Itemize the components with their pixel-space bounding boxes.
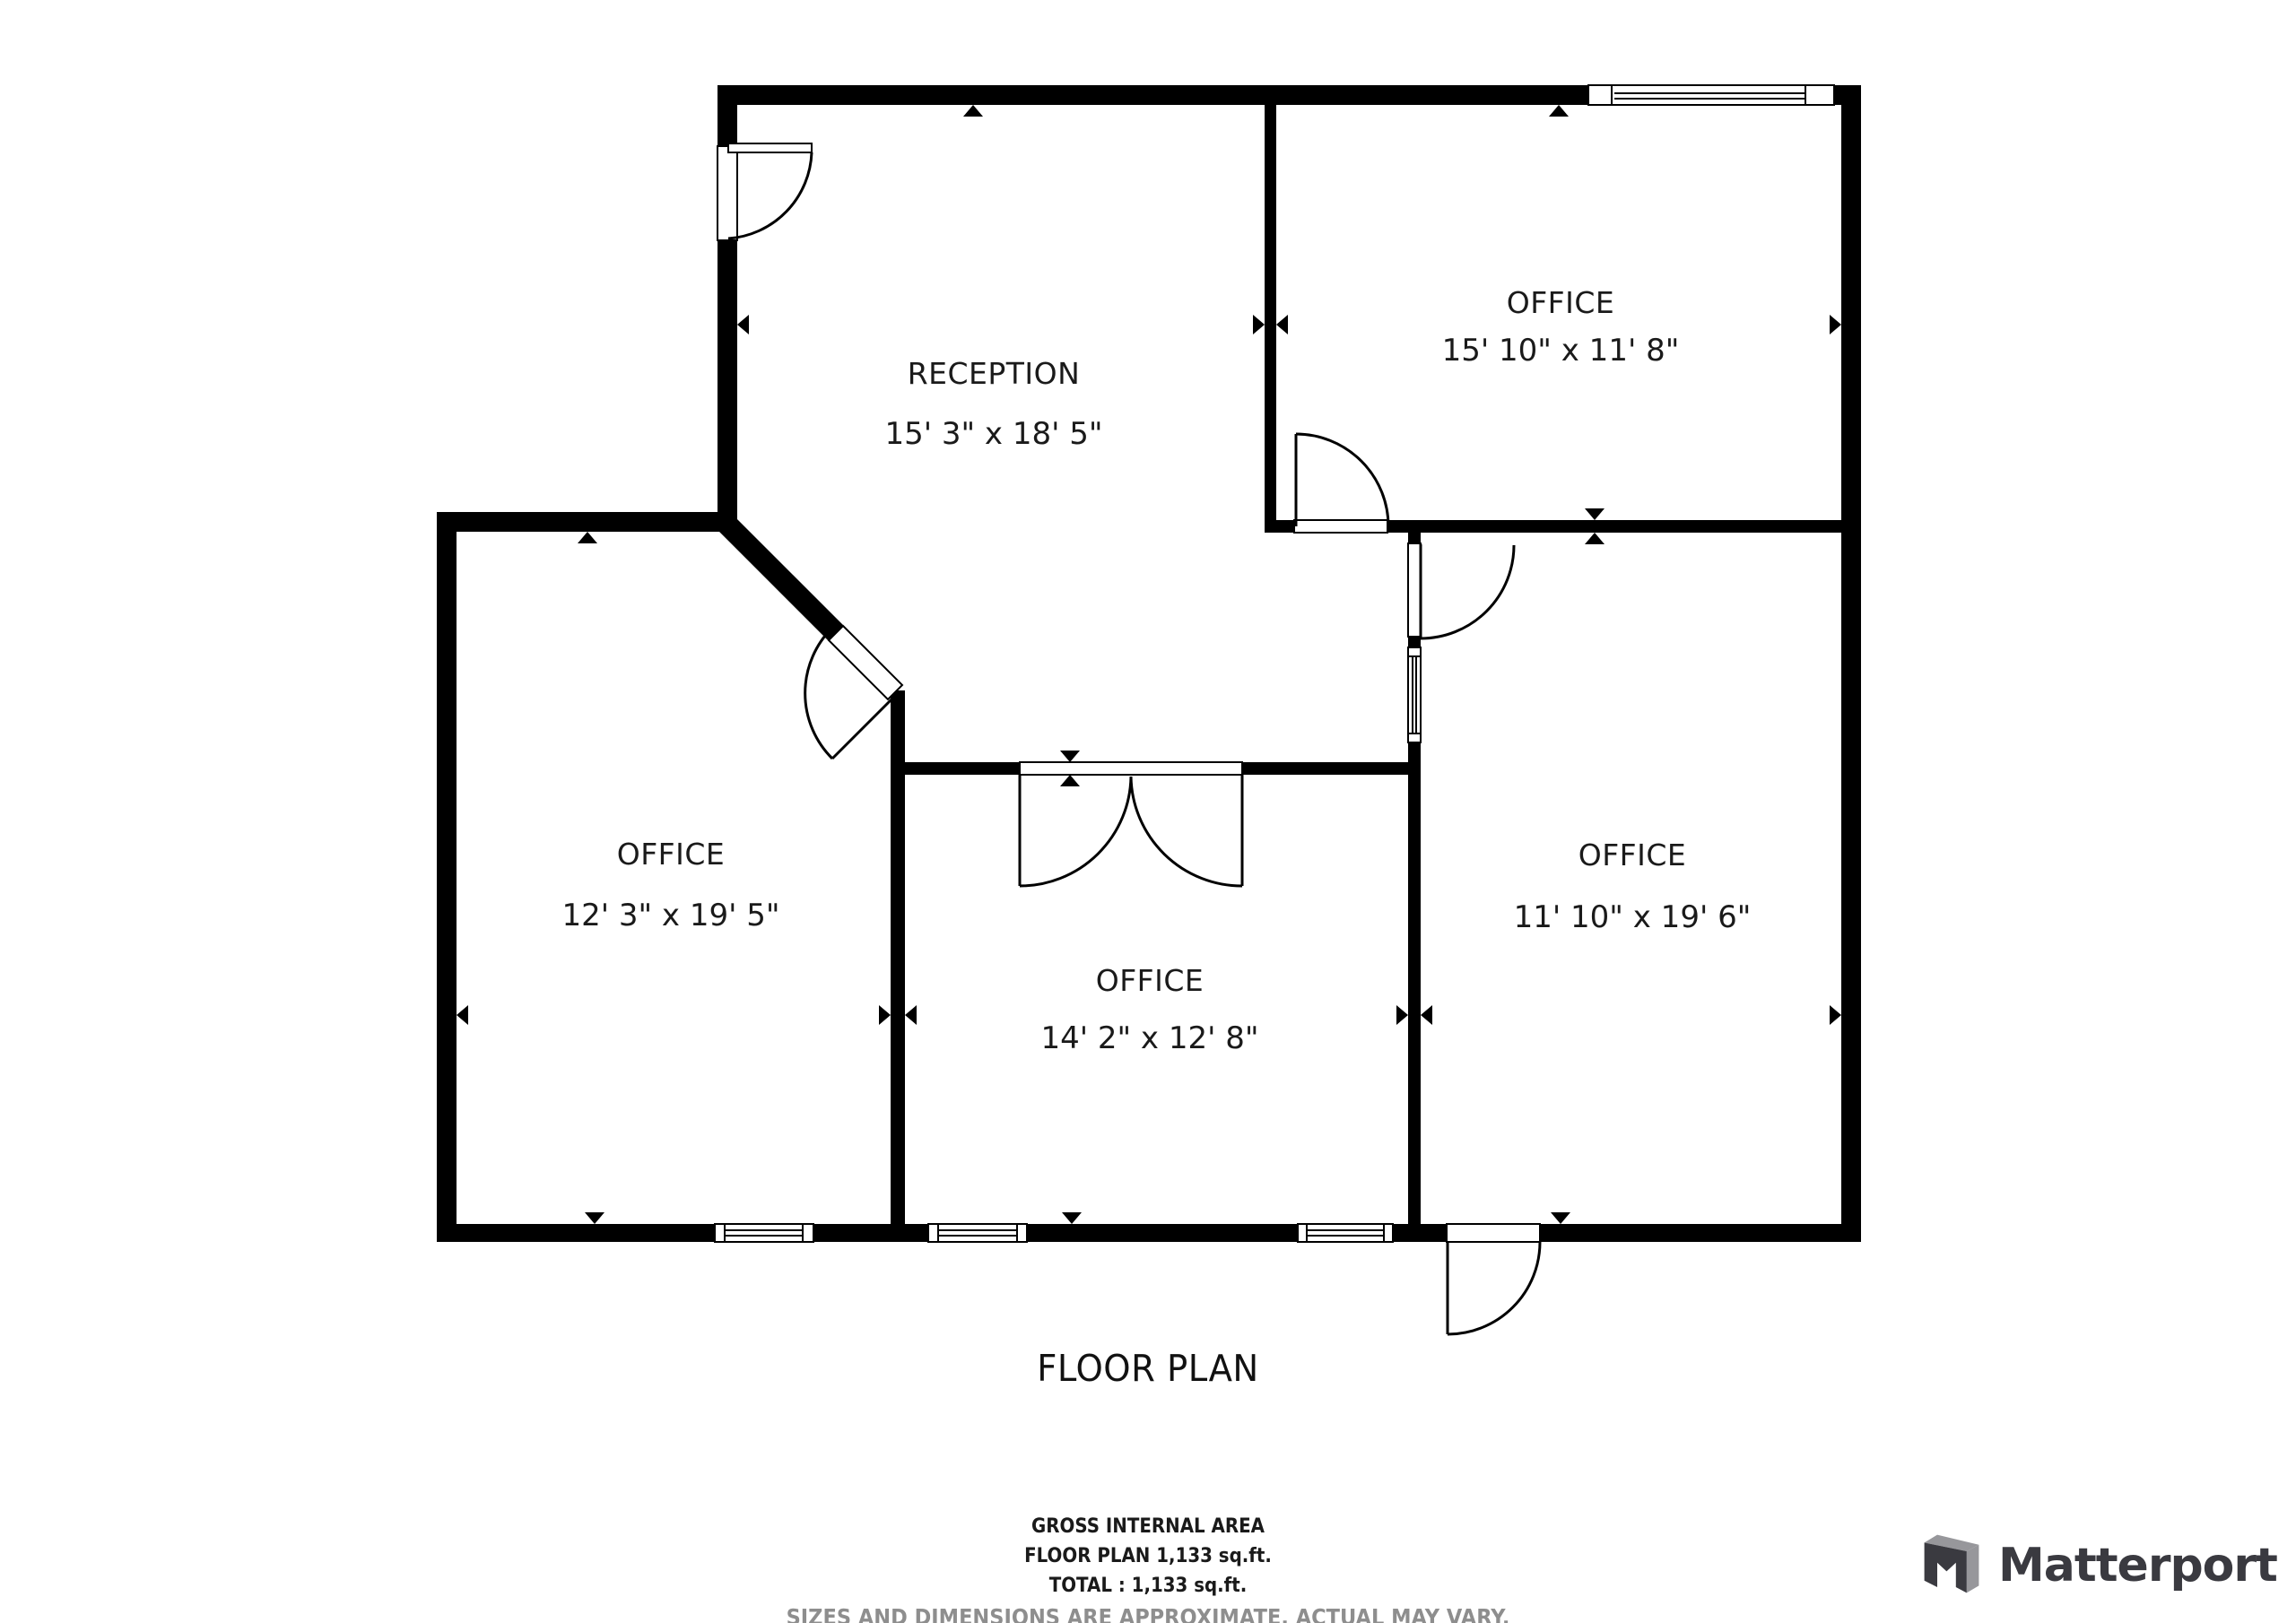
window-interior-vertical — [1408, 647, 1421, 742]
logo-mark-right-bevel — [1967, 1545, 1979, 1593]
marker-office-tr-top — [1549, 105, 1569, 117]
marker-left-middle-left — [879, 1005, 891, 1025]
door-diagonal-leaf — [832, 693, 898, 759]
marker-left-middle-right — [905, 1005, 917, 1025]
wall-right-exterior — [1841, 85, 1861, 1242]
room-office-right-dims: 11' 10" x 19' 6" — [1514, 899, 1752, 935]
footer-floor-plan-area: FLOOR PLAN 1,133 sq.ft. — [115, 1541, 2181, 1571]
wall-bottom-seg5 — [1540, 1224, 1861, 1242]
matterport-logo-icon — [1916, 1528, 1987, 1603]
door-diagonal-arc — [805, 628, 832, 759]
door-diagonal-opening — [829, 626, 902, 699]
door-office-tr-arc — [1296, 434, 1388, 526]
room-office-right-name: OFFICE — [1578, 838, 1687, 872]
door-right-office-arc — [1421, 545, 1514, 638]
wall-reception-left-lower — [717, 240, 737, 532]
matterport-wordmark: Matterport — [1998, 1539, 2277, 1593]
wall-middle-office-top-seg1 — [897, 762, 1020, 775]
floor-plan-page: RECEPTION 15' 3" x 18' 5" OFFICE 15' 10"… — [0, 0, 2296, 1623]
door-exterior-opening — [1447, 1224, 1540, 1242]
footer-total-area: TOTAL : 1,133 sq.ft. — [115, 1571, 2181, 1601]
wall-right-office-left-seg3 — [1408, 742, 1421, 1224]
room-labels: RECEPTION 15' 3" x 18' 5" OFFICE 15' 10"… — [561, 285, 1751, 1056]
room-office-tr-dims: 15' 10" x 11' 8" — [1442, 333, 1680, 369]
wall-left-exterior — [437, 512, 457, 1242]
room-office-tr-name: OFFICE — [1507, 285, 1615, 320]
marker-right-office-right — [1830, 1005, 1841, 1025]
wall-office-tr-bottom-seg1 — [1265, 520, 1294, 533]
wall-reception-left-upper — [717, 85, 737, 146]
room-office-middle-dims: 14' 2" x 12' 8" — [1040, 1020, 1258, 1056]
wall-right-office-left-seg2 — [1408, 637, 1421, 647]
marker-reception-left — [737, 315, 749, 334]
wall-bottom-seg2 — [813, 1224, 928, 1242]
wall-bottom-seg3 — [1027, 1224, 1298, 1242]
window-bottom-middle-office-2 — [1298, 1224, 1393, 1242]
wall-right-office-left-seg1 — [1408, 533, 1421, 543]
marker-reception-top — [963, 105, 983, 117]
matterport-logo: Matterport — [1916, 1528, 2277, 1603]
wall-left-middle-divider — [891, 690, 905, 1224]
window-bottom-left-office — [715, 1224, 813, 1242]
marker-reception-bottom-down — [1060, 775, 1080, 786]
room-office-middle-name: OFFICE — [1096, 963, 1205, 998]
wall-middle-office-top-seg2 — [1242, 762, 1408, 775]
marker-divider-left — [1253, 315, 1265, 334]
marker-office-tr-right — [1830, 315, 1841, 334]
room-office-left-dims: 12' 3" x 19' 5" — [561, 898, 779, 933]
logo-mark-m-shape — [1925, 1542, 1967, 1593]
marker-office-tr-bottom-up — [1585, 508, 1605, 520]
marker-middle-right-left — [1396, 1005, 1408, 1025]
wall-bottom-seg1 — [437, 1224, 715, 1242]
marker-right-office-bottom — [1551, 1212, 1570, 1224]
marker-middle-office-bottom — [1062, 1212, 1082, 1224]
wall-top-left-span — [717, 85, 1588, 105]
marker-middle-right-right — [1421, 1005, 1432, 1025]
wall-divider-reception-office — [1265, 85, 1276, 533]
marker-left-office-left — [457, 1005, 468, 1025]
wall-diagonal — [719, 516, 838, 635]
marker-left-office-bottom — [585, 1212, 604, 1224]
footer-gross-internal-area: GROSS INTERNAL AREA — [115, 1512, 2181, 1541]
door-exterior-arc — [1448, 1242, 1540, 1334]
door-double-arc-left — [1020, 777, 1131, 886]
walls — [437, 85, 1861, 1242]
door-reception-entrance-leaf — [728, 143, 812, 152]
footer: GROSS INTERNAL AREA FLOOR PLAN 1,133 sq.… — [115, 1512, 2181, 1623]
door-reception-entrance-opening — [717, 146, 737, 240]
marker-divider-right — [1276, 315, 1288, 334]
wall-bottom-seg4 — [1393, 1224, 1447, 1242]
window-top — [1588, 85, 1834, 105]
door-double-opening — [1020, 762, 1242, 775]
marker-reception-bottom-up — [1060, 751, 1080, 762]
marker-left-office-top — [578, 532, 597, 543]
room-office-left-name: OFFICE — [617, 837, 726, 872]
door-right-office-opening — [1408, 543, 1421, 637]
marker-office-tr-bottom-down — [1585, 533, 1605, 544]
door-reception-entrance-arc — [728, 152, 812, 239]
wall-office-tr-bottom-seg2 — [1387, 520, 1841, 533]
door-office-tr-opening — [1294, 520, 1387, 533]
footer-disclaimer: SIZES AND DIMENSIONS ARE APPROXIMATE, AC… — [115, 1604, 2181, 1623]
window-bottom-middle-office-1 — [928, 1224, 1027, 1242]
door-double-arc-right — [1131, 777, 1242, 886]
wall-left-office-top — [437, 512, 737, 532]
room-reception-dims: 15' 3" x 18' 5" — [884, 416, 1102, 452]
room-reception-name: RECEPTION — [908, 356, 1081, 391]
page-title: FLOOR PLAN — [69, 1347, 2227, 1390]
